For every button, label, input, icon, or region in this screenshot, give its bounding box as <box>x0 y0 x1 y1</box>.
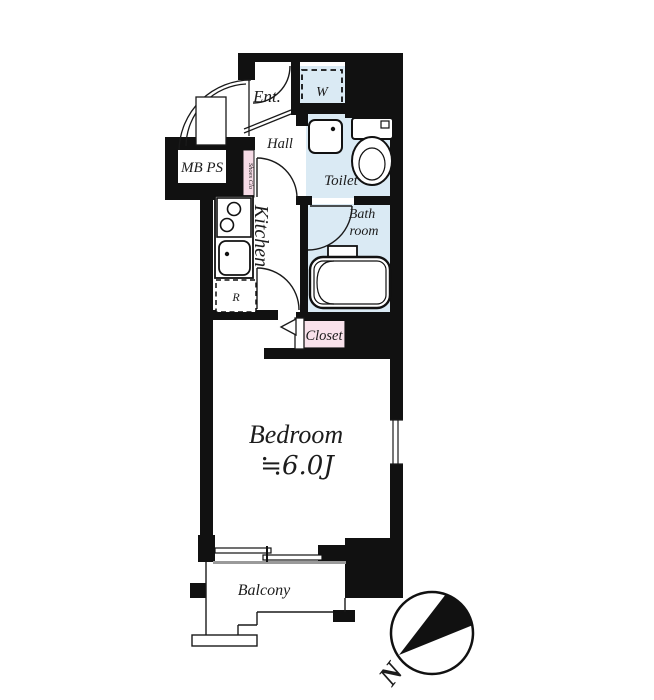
toilet-door-arc <box>257 158 297 198</box>
compass-north-label: N <box>372 655 411 692</box>
floor-plan-page: N Ent. W Hall MB PS Shoes Clo Toilet Kit… <box>0 0 654 700</box>
entrance-step-line <box>244 110 291 133</box>
closet-label: Closet <box>305 328 343 344</box>
bedroom-label: Bedroom <box>249 420 343 449</box>
kitchen-door-arc <box>257 268 299 310</box>
floor-plan: N Ent. W Hall MB PS Shoes Clo Toilet Kit… <box>0 0 654 700</box>
bathroom-label-line2: room <box>349 224 378 239</box>
balcony-outline <box>192 562 345 646</box>
bathroom-label-line1: Bath <box>349 207 375 222</box>
kitchen-sink-icon <box>219 241 250 275</box>
balcony-label: Balcony <box>238 582 291 599</box>
washer-label: W <box>316 85 329 100</box>
compass-icon: N <box>372 592 473 693</box>
bedroom-size-label: ≒6.0J <box>260 451 335 481</box>
meter-box-label: MB PS <box>180 160 224 176</box>
kitchen-label: Kitchen <box>250 204 272 267</box>
entrance-label: Ent. <box>252 87 281 106</box>
toilet-label: Toilet <box>324 173 358 189</box>
bedroom-window <box>390 420 403 464</box>
refrigerator-label: R <box>231 290 240 304</box>
sink-icon <box>309 120 342 153</box>
hall-label: Hall <box>266 136 293 152</box>
stove-icon <box>217 198 251 237</box>
closet-door-arrow-icon <box>281 319 296 335</box>
closet-door <box>281 318 304 349</box>
toilet-icon <box>352 118 393 185</box>
bathtub-icon <box>310 257 390 308</box>
shoes-closet-label: Shoes Clo <box>247 163 254 190</box>
